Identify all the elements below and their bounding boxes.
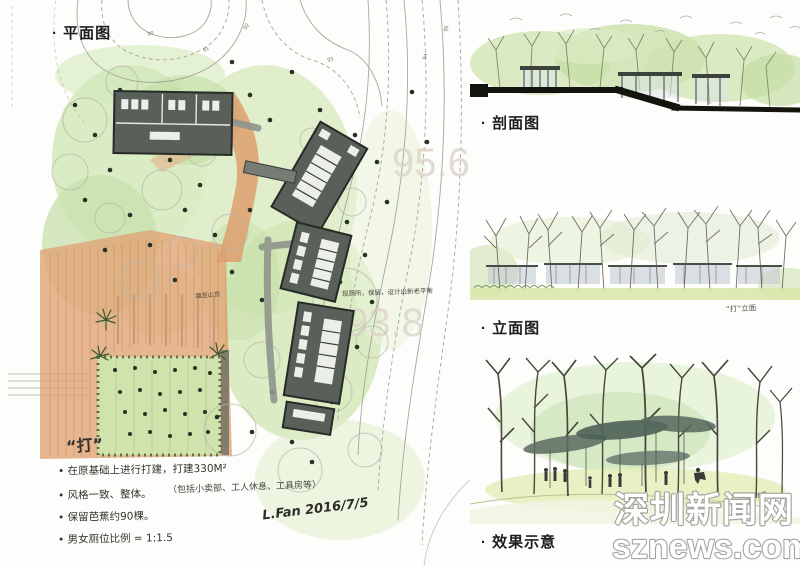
svg-text:91: 91 [202,46,210,54]
svg-text:95.6: 95.6 [392,141,470,185]
svg-text:93: 93 [327,56,335,64]
effect-view-label: · 效果示意 [481,531,556,552]
garden-square [98,357,220,455]
scanned-sketch-page: 90 91 92 93 94 95 95.6 93.8 [0,0,800,566]
svg-text:93.8: 93.8 [346,301,424,345]
svg-text:95: 95 [443,25,450,32]
svg-text:94: 94 [422,53,429,60]
notes-item-3: • 保留芭蕉约90棵。 [58,508,155,525]
watermark-cn: 深圳新闻网 [614,491,794,530]
svg-text:92: 92 [243,23,251,31]
notes-item-1: • 在原基础上进行打建，打建330M² [58,461,227,479]
watermark-url: sznews.com [612,528,800,566]
watermark: 深圳新闻网 sznews.com [608,488,800,566]
notes-title: “打” [65,431,104,458]
notes-item-2: • 风格一致、整体。 [58,486,152,503]
svg-text:90: 90 [147,30,155,37]
retaining-wall [221,350,229,455]
section-view-drawing [470,8,800,120]
section-view-label: · 剖面图 [481,112,540,133]
elevation-ground [470,288,800,300]
elevation-note: “打”立面 [726,302,757,315]
notes-item-4: • 男女厕位比例 = 1:1.5 [58,530,173,547]
elevation-view-label: · 立面图 [481,317,540,338]
plan-view-label: · 平面图 [52,22,111,43]
svg-text:路至山顶: 路至山顶 [196,290,221,300]
elevation-view-drawing [470,196,800,310]
